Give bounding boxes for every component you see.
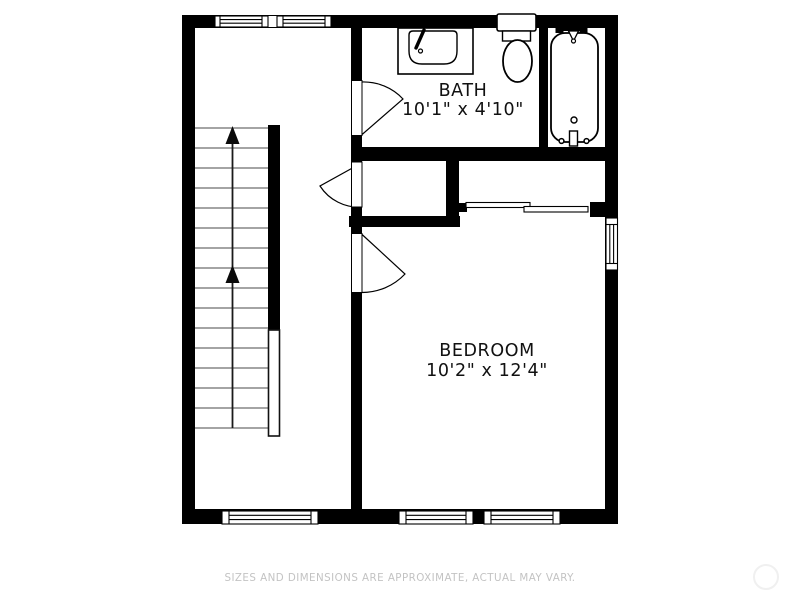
bath-swing-door bbox=[352, 81, 404, 136]
sink-icon bbox=[398, 28, 473, 74]
closet-sliding-door bbox=[458, 203, 588, 213]
closet-swing-door bbox=[320, 162, 362, 207]
staircase bbox=[195, 126, 280, 436]
bottom-window-hall bbox=[222, 511, 318, 524]
stair-railing bbox=[269, 330, 280, 436]
bathtub-icon bbox=[551, 26, 598, 146]
floor-plan-page: BATH 10'1" x 4'10" BEDROOM 10'2" x 12'4"… bbox=[0, 0, 800, 600]
floor-plan-drawing: BATH 10'1" x 4'10" BEDROOM 10'2" x 12'4"… bbox=[0, 0, 800, 600]
right-window bbox=[606, 218, 618, 270]
top-double-window bbox=[215, 16, 331, 27]
stair-up-arrow-icon bbox=[226, 126, 240, 144]
bath-label: BATH bbox=[439, 81, 488, 101]
bedroom-swing-door bbox=[352, 234, 406, 293]
bottom-window-bedroom-right bbox=[484, 511, 560, 524]
bedroom-label: BEDROOM bbox=[439, 341, 535, 361]
disclaimer-text: SIZES AND DIMENSIONS ARE APPROXIMATE, AC… bbox=[224, 572, 575, 584]
toilet-icon bbox=[497, 14, 536, 82]
bath-dimensions: 10'1" x 4'10" bbox=[402, 100, 524, 120]
watermark-circle-icon bbox=[754, 565, 778, 589]
bedroom-dimensions: 10'2" x 12'4" bbox=[426, 361, 548, 381]
bottom-window-bedroom-left bbox=[399, 511, 473, 524]
